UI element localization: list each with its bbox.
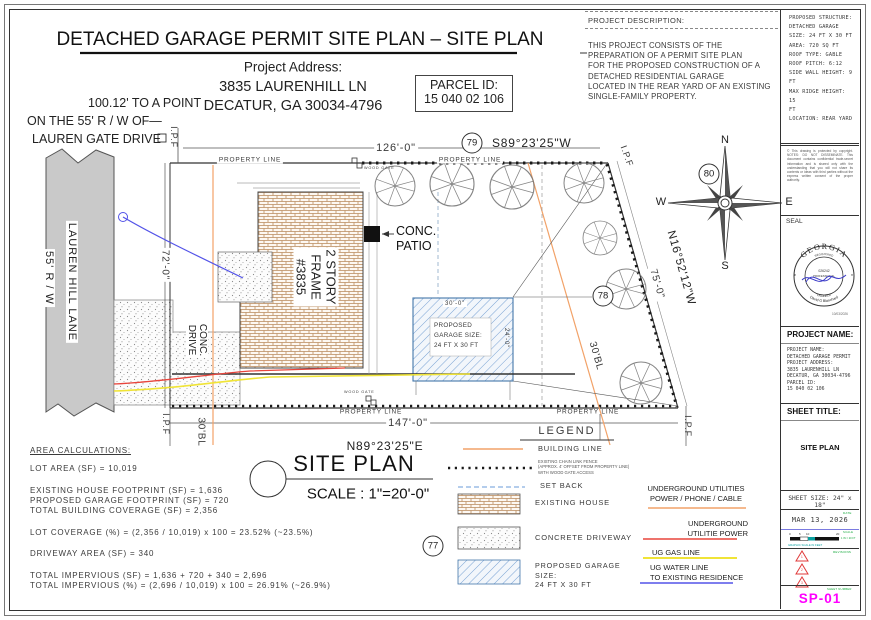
scale-tick-10: 10 <box>806 532 809 536</box>
area-calcs-line: TOTAL BUILDING COVERAGE (SF) = 2,356 <box>30 506 218 515</box>
revision-1: 1 <box>801 555 803 559</box>
sheet-title-value: SITE PLAN <box>781 443 859 452</box>
left-rw-note-line3: LAUREN GATE DRIVE <box>32 132 161 146</box>
legend-building-line-label: BUILDING LINE <box>538 444 603 453</box>
ipf-label-bottom-left: I.P.F <box>161 413 171 435</box>
area-calcs-line: EXISTING HOUSE FOOTPRINT (SF) = 1,636 <box>30 486 223 495</box>
project-description-block: PROJECT DESCRIPTION: THIS PROJECT CONSIS… <box>585 11 778 102</box>
area-calcs-line: PROPOSED GARAGE FOOTPRINT (SF) = 720 <box>30 496 229 505</box>
legend-garage-swatch <box>458 560 520 584</box>
site-plan-title: SITE PLAN <box>293 451 414 477</box>
wood-gate-label-top: WOOD GATE <box>364 166 395 170</box>
legend-setback-label: SET BACK <box>540 481 583 490</box>
area-calcs-line: LOT COVERAGE (%) = (2,356 / 10,019) x 10… <box>30 528 313 537</box>
garage-label: PROPOSED GARAGE SIZE: 24 FT X 30 FT <box>434 321 482 351</box>
project-name-header: PROJECT NAME: <box>787 330 853 339</box>
left-rw-note-line1: 100.12' TO A POINT <box>88 96 201 110</box>
legend-existing-house-label: EXISTING HOUSE <box>535 498 610 507</box>
svg-text:*: * <box>794 274 796 280</box>
scale-label: SCALE <box>843 530 853 534</box>
seal-label: SEAL <box>786 218 803 225</box>
compass-e-label: E <box>785 196 792 208</box>
area-calcs-line: TOTAL IMPERVIOUS (SF) = 1,636 + 720 + 34… <box>30 571 267 580</box>
legend-house-swatch <box>458 494 520 514</box>
sheet-number-value: SP-01 <box>781 591 859 606</box>
site-plan-title-bubble <box>250 461 286 497</box>
concrete-driveway-area <box>114 300 240 405</box>
compass-rose <box>668 146 782 260</box>
dim-top-label: 126'-0" <box>374 142 418 154</box>
compass-w-label: W <box>656 196 666 208</box>
site-plan-scale: SCALE : 1"=20'-0" <box>307 486 429 503</box>
svg-text:*: * <box>851 274 853 280</box>
project-description-label: PROJECT DESCRIPTION: <box>588 16 778 25</box>
legend-util1-label: UNDERGROUND UTILITIES POWER / PHONE / CA… <box>640 484 752 504</box>
dim-bottom-label: 147'-0" <box>386 417 430 429</box>
wood-gate-top <box>352 158 357 163</box>
area-calcs-line: DRIVEWAY AREA (SF) = 340 <box>30 549 154 558</box>
compass-s-label: S <box>721 260 728 272</box>
ref-circle-78-label: 78 <box>598 291 609 302</box>
bearing-top-label: S89°23'25"W <box>492 136 572 150</box>
parcel-id-box: PARCEL ID: 15 040 02 106 <box>415 75 513 112</box>
scale-tick-20: 20 <box>836 532 839 536</box>
date-value: MAR 13, 2026 <box>781 516 859 524</box>
parcel-id-label: PARCEL ID: <box>416 78 512 92</box>
project-name-block: PROJECT NAME: DETACHED GARAGE PERMIT PRO… <box>787 348 857 394</box>
legend-fence-label: EXISTING CHAIN LINK FENCE (APPROX. 4' OF… <box>538 459 629 475</box>
legend-title: LEGEND <box>538 425 595 437</box>
property-line-label-top1: PROPERTY LINE <box>217 157 283 164</box>
project-address-line1: 3835 LAURENHILL LN <box>219 79 367 95</box>
wood-gate-label-bottom: WOOD GATE <box>344 390 375 394</box>
chain-link-fence-slant <box>607 164 677 407</box>
garage-dim-width: 30'-0" <box>443 301 467 307</box>
road-lauren-hill-lane <box>46 149 114 416</box>
legend-util3-label: UG GAS LINE <box>652 548 700 557</box>
legend-concrete-driveway-label: CONCRETE DRIVEWAY <box>535 533 632 542</box>
sheet-main-title: DETACHED GARAGE PERMIT SITE PLAN – SITE … <box>56 29 543 51</box>
seal-engineer-text: ENGINEER <box>817 293 832 298</box>
project-address-label: Project Address: <box>244 60 342 75</box>
area-calcs-title: AREA CALCULATIONS: <box>30 446 131 455</box>
scale-tick-0: 0 <box>789 532 791 536</box>
legend-driveway-swatch <box>458 527 520 549</box>
garage-dim-height: 24'-0" <box>503 328 509 348</box>
legend-util2-label: UNDERGROUND UTILITIE POWER <box>650 519 748 539</box>
seal-date: 10/03/2026 <box>832 312 848 316</box>
ug-water-line <box>123 217 243 278</box>
sheet-title-header: SHEET TITLE: <box>787 407 841 416</box>
legend-util4-label: UG WATER LINE TO EXISTING RESIDENCE <box>650 563 743 583</box>
scale-note: 1 IN = 20 FT <box>841 537 856 540</box>
sheet-size: SHEET SIZE: 24" x 18" <box>781 495 859 509</box>
graphic-scale-bar <box>790 537 839 541</box>
wood-gate-bottom <box>366 396 371 401</box>
area-calcs-line: LOT AREA (SF) = 10,019 <box>30 464 138 473</box>
revision-2: 2 <box>801 568 803 572</box>
house-label: 2 STORY FRAME #3835 <box>294 247 339 306</box>
seal-number-text: 026242 <box>818 269 829 273</box>
building-line-label-front: 30'BL <box>196 417 207 446</box>
property-line-label-bottom1: PROPERTY LINE <box>340 409 402 416</box>
road-name-label: LAUREN HILL LANE <box>66 221 78 343</box>
project-description-text: THIS PROJECT CONSISTS OF THE PREPARATION… <box>588 41 778 102</box>
patio-arrowhead <box>382 231 389 237</box>
revisions-label: REVISIONS <box>833 550 851 554</box>
property-line-label-top2: PROPERTY LINE <box>437 157 503 164</box>
conc-patio-label: CONC. PATIO <box>396 224 436 254</box>
engineer-seal: GEORGIA REGISTERED 026242 PROFESSIONAL E… <box>788 230 860 316</box>
conc-drive-label: CONC. DRIVE <box>186 322 208 358</box>
compass-n-label: N <box>721 134 729 146</box>
conc-patio-square <box>364 226 380 242</box>
ref-circle-80-label: 80 <box>704 169 715 180</box>
scale-caption: GRAPHIC SCALE IN FEET <box>788 543 822 547</box>
left-rw-note-line2: ON THE 55' R / W OF— <box>27 114 162 128</box>
date-label: DATE <box>843 511 852 515</box>
area-calcs-line: TOTAL IMPERVIOUS (%) = (2,696 / 10,019) … <box>30 581 331 590</box>
ipf-label-top-left: I.P.F <box>169 126 179 148</box>
parcel-id-value: 15 040 02 106 <box>416 92 512 106</box>
scale-tick-5: 5 <box>799 532 801 536</box>
dim-left-label: 72'-0" <box>160 248 171 282</box>
site-plan-sheet: DETACHED GARAGE PERMIT SITE PLAN – SITE … <box>0 0 871 620</box>
legend-proposed-garage-label: PROPOSED GARAGE SIZE: 24 FT X 30 FT <box>535 561 621 590</box>
structure-info-block: PROPOSED STRUCTURE: DETACHED GARAGE SIZE… <box>789 14 855 124</box>
ref-circle-79-label: 79 <box>467 138 478 149</box>
svg-text:ENGINEER: ENGINEER <box>817 293 832 298</box>
project-address-line2: DECATUR, GA 30034-4796 <box>204 98 383 114</box>
concrete-stoop <box>218 252 272 302</box>
ref-circle-77-label: 77 <box>428 541 439 552</box>
road-rw-label: 55' R / W <box>43 249 55 307</box>
copyright-notice: © This drawing is protected by copyright… <box>787 149 853 183</box>
property-line-label-bottom2: PROPERTY LINE <box>557 409 619 416</box>
ipf-label-bottom-right: I.P.F <box>683 415 693 437</box>
